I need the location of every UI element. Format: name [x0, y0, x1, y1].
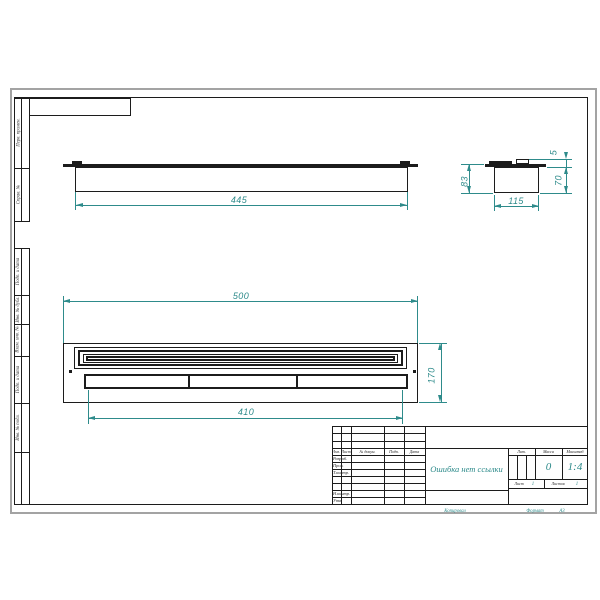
- title-block-line: [332, 441, 425, 442]
- title-block-line: [404, 426, 405, 505]
- tb-sheets-value: 1: [573, 481, 580, 486]
- tb-sheets-label: Листов: [552, 481, 565, 486]
- front-view-bar: [84, 374, 408, 389]
- arrowhead: [88, 416, 95, 420]
- dimension-line-170: [441, 343, 442, 403]
- tb-row-utv: Утв.: [333, 499, 343, 503]
- title-block-line: [544, 479, 545, 488]
- arrowhead: [564, 167, 568, 174]
- dim-front-width: 500: [222, 291, 260, 301]
- extension-line: [494, 195, 495, 211]
- arrowhead: [438, 343, 442, 350]
- dim-front-inner-width: 410: [227, 407, 265, 417]
- stamp-label-vzam-inv: Взам. инв. №: [14, 330, 19, 349]
- title-block-line: [332, 433, 425, 434]
- title-block-line: [526, 455, 527, 479]
- tb-row-tkontr: Т.контр.: [333, 471, 343, 475]
- stamp-label-inv-podl: Инв. № подл.: [15, 413, 20, 442]
- title-block-line: [517, 455, 518, 479]
- stamp-label-podp-data-1: Подп. и дата: [15, 257, 20, 285]
- tb-lit-label: Лит.: [515, 450, 529, 454]
- top-view-tab-right: [400, 161, 410, 164]
- dimension-line-445: [76, 205, 407, 206]
- front-view-bar-divider: [188, 376, 190, 387]
- dimension-line-5: [566, 159, 567, 167]
- extension-line: [63, 296, 64, 343]
- arrowhead: [400, 203, 407, 207]
- title-block-line: [332, 483, 425, 484]
- stamp-label-perv-primen: Перв. примен.: [15, 112, 20, 154]
- dim-side-height: 83: [460, 168, 469, 196]
- stamp-line: [14, 324, 30, 325]
- tb-row-razrab: Разраб.: [333, 457, 343, 461]
- top-view-body: [75, 167, 408, 192]
- tb-header-list: Лист: [344, 450, 349, 454]
- arrowhead: [63, 299, 70, 303]
- tb-document-name: Ошибка нет ссылки: [426, 449, 507, 489]
- tb-scale-value: 1:4: [562, 456, 588, 478]
- title-block-line: [332, 476, 425, 477]
- side-view-tab-filled: [489, 161, 512, 164]
- arrowhead: [438, 395, 442, 402]
- stamp-line: [14, 356, 30, 357]
- tb-header-podp: Подп.: [389, 450, 399, 454]
- arrowhead: [396, 416, 403, 420]
- arrowhead: [564, 186, 568, 193]
- title-block-line: [351, 426, 352, 505]
- tb-sheet-value: 1: [529, 481, 536, 486]
- extension-line: [419, 343, 447, 344]
- dimension-line-500: [63, 301, 418, 302]
- stamp-divider: [21, 248, 22, 505]
- title-block-line: [508, 488, 588, 489]
- footer-format-value: А3: [557, 508, 567, 513]
- side-view-tab-outline: [516, 159, 529, 164]
- extension-line: [461, 164, 484, 165]
- front-view-dot-right: [413, 370, 416, 373]
- title-block-line: [332, 462, 425, 463]
- stamp-label-podp-data-2: Подп. и дата: [15, 365, 20, 393]
- tb-row-nkontr: Н.контр.: [333, 492, 343, 496]
- title-block-line: [508, 448, 509, 505]
- tb-mass-label: Масса: [542, 450, 556, 454]
- arrowhead: [411, 299, 418, 303]
- stamp-label-inv-dubl: Инв. № дубл.: [15, 301, 20, 318]
- title-block-line: [425, 490, 508, 491]
- front-view-slot-core: [86, 356, 395, 361]
- drawing-canvas: Перв. примен. Справ. № Подп. и дата Инв.…: [0, 0, 600, 600]
- dim-front-height: 170: [427, 362, 436, 390]
- arrowhead: [564, 152, 568, 159]
- dimension-line-410: [88, 418, 403, 419]
- extension-line: [419, 402, 447, 403]
- top-left-stamp-box: [29, 98, 131, 116]
- stamp-line: [14, 403, 30, 404]
- tb-sheet-label: Лист: [514, 481, 524, 486]
- dim-side-width: 115: [497, 196, 535, 206]
- extension-line: [407, 192, 408, 210]
- front-view-dot-left: [69, 370, 72, 373]
- tb-header-izm: Изм.: [333, 450, 339, 454]
- extension-line: [75, 192, 76, 210]
- extension-line: [538, 195, 539, 211]
- title-block-line: [384, 426, 385, 505]
- stamp-line: [14, 168, 30, 169]
- stamp-line: [14, 452, 30, 453]
- stamp-label-sprav-no: Справ. №: [15, 178, 20, 210]
- side-view-body: [494, 167, 539, 193]
- dim-side-tab-height: 5: [549, 139, 558, 167]
- tb-header-data: Дата: [409, 450, 420, 454]
- tb-row-prov: Пров.: [333, 464, 343, 468]
- extension-line: [417, 296, 418, 343]
- tb-header-docnum: № докум.: [359, 450, 376, 454]
- dim-side-body-height: 70: [554, 167, 563, 195]
- front-view-bar-divider: [296, 376, 298, 387]
- tb-mass-value: 0: [535, 456, 562, 478]
- footer-copy-label: Копировал: [434, 508, 476, 513]
- footer-format-label: Формат: [522, 508, 547, 513]
- dim-top-width: 445: [220, 195, 258, 205]
- arrowhead: [76, 203, 83, 207]
- top-view-tab-left: [72, 161, 82, 164]
- tb-scale-label: Масштаб: [569, 450, 582, 454]
- stamp-divider: [21, 98, 22, 222]
- title-block-line: [332, 497, 425, 498]
